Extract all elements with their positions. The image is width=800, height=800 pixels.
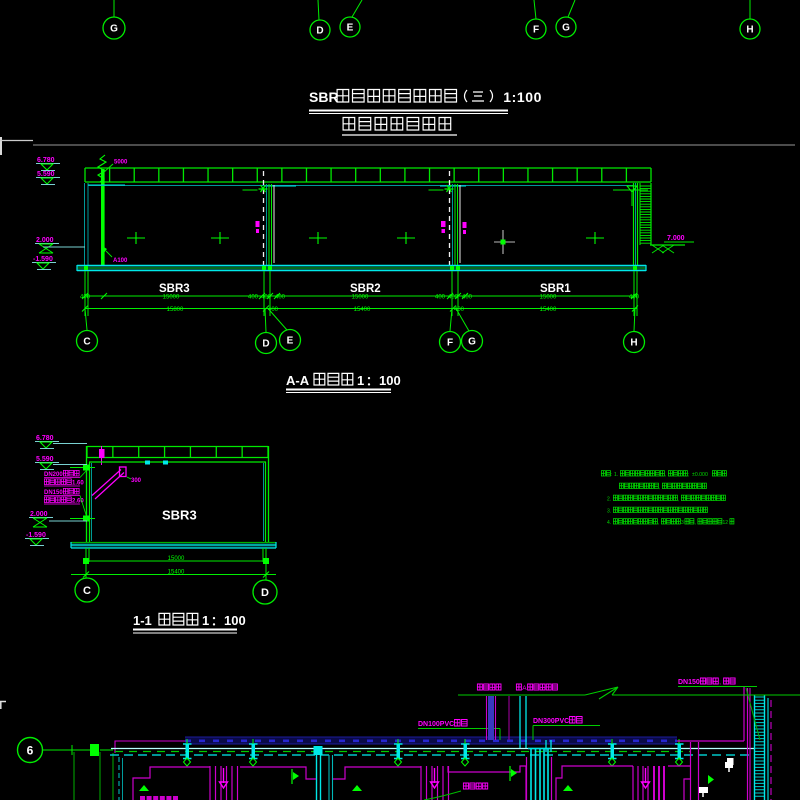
svg-text:-1.590: -1.590: [26, 532, 46, 539]
svg-text:A100: A100: [113, 258, 128, 264]
svg-text:DN100PVC: DN100PVC: [418, 721, 454, 728]
svg-text:2.000: 2.000: [36, 237, 54, 244]
svg-text:400: 400: [80, 295, 91, 301]
svg-text:12: 12: [723, 520, 729, 526]
svg-text:SBR3: SBR3: [159, 283, 190, 295]
svg-text:2.: 2.: [607, 497, 611, 503]
svg-text:±0.000: ±0.000: [692, 472, 708, 478]
svg-text:15000: 15000: [540, 295, 557, 301]
svg-text:15400: 15400: [540, 307, 557, 313]
svg-text:400: 400: [448, 295, 459, 301]
svg-text:E: E: [347, 23, 354, 34]
svg-text:H: H: [746, 25, 753, 36]
svg-text:D: D: [262, 339, 269, 350]
svg-text:400: 400: [435, 295, 446, 301]
svg-text:400: 400: [462, 295, 473, 301]
svg-text:,: ,: [658, 520, 659, 526]
svg-text:D: D: [316, 26, 323, 37]
svg-text:,: ,: [695, 520, 696, 526]
svg-text:15000: 15000: [352, 295, 369, 301]
svg-text:5.590: 5.590: [37, 171, 55, 178]
svg-text:400: 400: [275, 295, 286, 301]
svg-text:2.000: 2.000: [30, 511, 48, 518]
svg-text:：: ：: [211, 614, 223, 628]
svg-text:400: 400: [248, 295, 259, 301]
svg-text:1: 1: [202, 613, 209, 628]
svg-text:G: G: [468, 337, 476, 348]
svg-text:3.: 3.: [607, 509, 611, 515]
svg-text:6: 6: [27, 744, 34, 758]
svg-text:6.780: 6.780: [36, 435, 54, 442]
svg-text:400: 400: [261, 295, 272, 301]
svg-text:;: ;: [688, 472, 689, 478]
svg-text:1: 1: [357, 373, 364, 388]
svg-text:A: A: [522, 685, 527, 692]
svg-text:1.: 1.: [614, 472, 618, 478]
svg-text:3: 3: [681, 520, 684, 526]
svg-text:400: 400: [629, 295, 640, 301]
svg-text:G: G: [110, 24, 118, 35]
svg-text:15000: 15000: [163, 295, 180, 301]
svg-text:15000: 15000: [168, 556, 185, 562]
svg-text:SBR: SBR: [309, 89, 339, 105]
svg-text:DN150: DN150: [678, 679, 700, 686]
svg-text:,: ,: [678, 497, 679, 503]
svg-text::: :: [611, 472, 612, 478]
svg-text:H: H: [630, 338, 637, 349]
svg-text:：: ：: [366, 374, 378, 388]
svg-text:7.000: 7.000: [667, 235, 685, 242]
svg-text:SBR3: SBR3: [162, 508, 197, 523]
svg-text:300: 300: [131, 478, 142, 484]
svg-text:C: C: [83, 337, 90, 348]
svg-text:1:100: 1:100: [503, 89, 542, 105]
svg-text:-1.590: -1.590: [33, 256, 53, 263]
svg-text:6.780: 6.780: [37, 157, 55, 164]
svg-text:4.: 4.: [607, 520, 611, 526]
svg-text:15400: 15400: [168, 570, 185, 576]
svg-text:E: E: [287, 336, 294, 347]
svg-text:100: 100: [224, 613, 246, 628]
svg-text:5.590: 5.590: [36, 456, 54, 463]
svg-text:A-A: A-A: [286, 373, 310, 388]
svg-text:SBR1: SBR1: [540, 283, 571, 295]
svg-text:400: 400: [454, 307, 465, 313]
svg-text:100: 100: [379, 373, 401, 388]
svg-text:F: F: [447, 338, 453, 349]
svg-text:G: G: [562, 23, 570, 34]
svg-text:D: D: [261, 587, 269, 599]
svg-text:SBR2: SBR2: [350, 283, 381, 295]
svg-text:1-1: 1-1: [133, 613, 152, 628]
svg-text:5000: 5000: [114, 160, 128, 166]
svg-text:,: ,: [659, 485, 660, 491]
svg-text:15400: 15400: [354, 307, 371, 313]
svg-text:15800: 15800: [167, 307, 184, 313]
svg-text:F: F: [533, 25, 539, 36]
svg-text:,: ,: [665, 472, 666, 478]
svg-text:DN300PVC: DN300PVC: [533, 718, 569, 725]
svg-text:C: C: [83, 585, 91, 597]
